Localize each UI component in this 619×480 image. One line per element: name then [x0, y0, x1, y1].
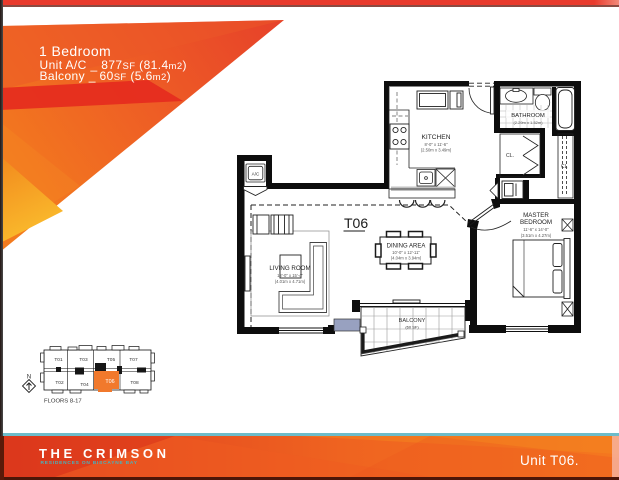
svg-text:T07: T07	[129, 357, 138, 363]
svg-text:FLOORS 8-17: FLOORS 8-17	[44, 399, 82, 405]
svg-text:T06: T06	[105, 379, 114, 385]
svg-text:T04: T04	[80, 382, 89, 388]
svg-text:T03: T03	[79, 357, 88, 363]
svg-text:T02: T02	[55, 380, 64, 386]
svg-text:T01: T01	[54, 357, 63, 363]
svg-text:T05: T05	[107, 357, 116, 363]
svg-text:T08: T08	[130, 380, 139, 386]
